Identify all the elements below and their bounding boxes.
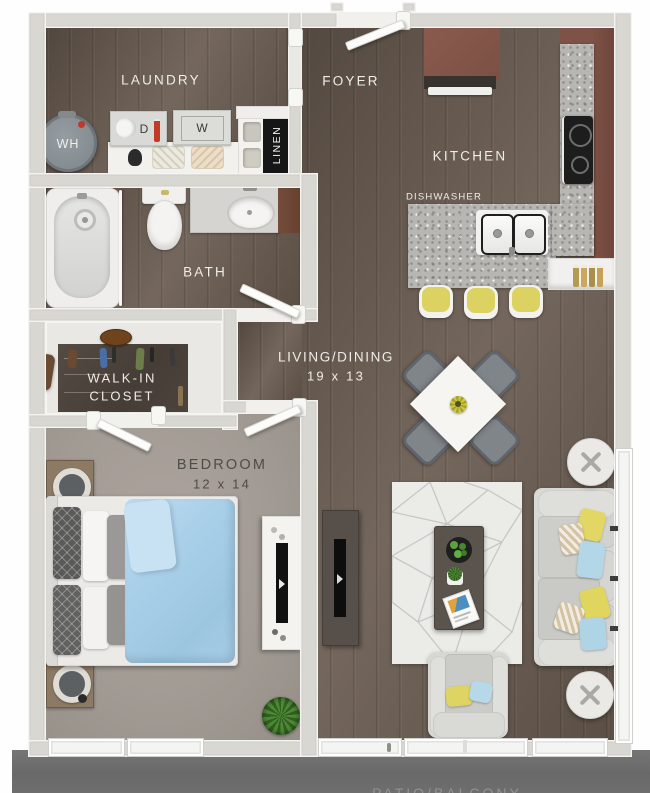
- bowl-greens: [450, 541, 458, 549]
- burner-small: [571, 156, 589, 174]
- bedroom-window: [127, 738, 204, 757]
- dryer-unit: D: [110, 111, 167, 146]
- water-heater-pipe: [58, 111, 76, 118]
- decor-plant-small: [447, 571, 463, 585]
- bowl-greens: [461, 550, 467, 556]
- tub-drain: [74, 209, 96, 231]
- kettle: [128, 149, 142, 166]
- wine-bottle: [573, 265, 579, 287]
- kitchen-upper-cabinet: [424, 28, 500, 80]
- bath-cabinet: [278, 182, 302, 233]
- bedroom-dresser: [262, 516, 302, 650]
- decor-plant-leaves: [448, 567, 462, 581]
- kitchen-counter-connector: [552, 204, 594, 256]
- wall-bath-right: [300, 173, 318, 322]
- magazine-cover-art: [447, 595, 469, 614]
- window-frame-tick: [610, 576, 618, 581]
- bed: [46, 496, 238, 666]
- hanging-garment: [169, 348, 175, 366]
- right-wall-window: [615, 448, 633, 744]
- shower-curtain: [119, 190, 122, 306]
- bedroom-plant: [262, 697, 300, 735]
- side-table: [566, 671, 614, 719]
- armchair-back: [433, 712, 505, 738]
- laundry-door-post: [288, 28, 303, 47]
- dresser-knob: [271, 527, 277, 533]
- laundry-counter: [108, 142, 246, 173]
- dryer-label: D: [140, 122, 149, 136]
- burner-large: [569, 124, 592, 147]
- wall-left: [28, 12, 46, 757]
- decor-bowl: [446, 537, 472, 563]
- laundry-sink-basin: [243, 148, 261, 168]
- water-heater-label: WH: [57, 137, 80, 151]
- vanity-drain: [247, 210, 252, 215]
- patio-door: [318, 738, 402, 757]
- laundry-basket: [152, 146, 185, 169]
- hanging-garment: [99, 348, 107, 368]
- stool-seat: [512, 287, 540, 312]
- tub-drain-dot: [82, 217, 88, 223]
- bath-vanity: [190, 184, 280, 233]
- wine-shelf: [548, 258, 616, 290]
- living-tv: [334, 539, 346, 617]
- hanging-garment: [150, 347, 154, 362]
- bed-pillow-dark: [53, 507, 81, 579]
- kitchen-label: KITCHEN: [433, 149, 508, 164]
- closet-label-line1: WALK-IN: [87, 371, 156, 386]
- bed-pillow-white: [83, 511, 109, 581]
- living-dining-dims-label: 19 x 13: [307, 369, 365, 384]
- sofa-pillow-blue: [576, 541, 606, 580]
- toilet-bowl: [147, 200, 182, 250]
- entry-frame-tab: [330, 2, 344, 12]
- detergent-bottle: [154, 119, 160, 142]
- dryer-drum: [116, 118, 136, 138]
- bed-pillow-white: [83, 587, 109, 649]
- bedroom-dims-label: 12 x 14: [193, 477, 251, 492]
- water-heater: WH: [39, 114, 97, 172]
- hanging-garment: [135, 348, 144, 370]
- foyer-label: FOYER: [322, 74, 380, 89]
- coffee-table: [434, 526, 484, 630]
- washer-unit: W: [173, 110, 231, 145]
- armchair-pillow-blue: [468, 680, 493, 704]
- bedroom-window: [48, 738, 125, 757]
- tv-play-icon: [279, 579, 285, 589]
- dresser-knob: [272, 629, 278, 635]
- linen-shelf-top: [236, 106, 293, 119]
- stool-seat: [422, 287, 450, 312]
- sink-basin-right: [513, 214, 546, 255]
- toilet-button: [161, 190, 169, 195]
- sink-faucet: [509, 247, 515, 255]
- dining-centerpiece-plant: [450, 396, 467, 413]
- dresser-knob: [280, 635, 286, 641]
- tv-play-icon: [337, 574, 343, 584]
- wine-bottle: [589, 265, 595, 287]
- bedroom-label: BEDROOM: [177, 457, 267, 473]
- side-table: [567, 438, 615, 486]
- duvet: [125, 499, 235, 663]
- patio-door-handle: [387, 743, 391, 752]
- hanging-garment: [112, 347, 116, 363]
- laundry-basket: [191, 146, 224, 169]
- closet-bag: [100, 329, 132, 346]
- dresser-knob: [279, 534, 285, 540]
- laundry-door-post: [288, 88, 303, 107]
- dishwasher-label: DISHWASHER: [406, 192, 482, 203]
- closet-label-line2: CLOSET: [89, 389, 154, 404]
- hanging-garment: [178, 386, 183, 406]
- laundry-label: LAUNDRY: [121, 73, 201, 88]
- patio-label: PATIO/BALCONY: [372, 785, 522, 793]
- living-dining-label: LIVING/DINING: [278, 350, 394, 365]
- vanity-sink: [227, 196, 275, 230]
- stove: [562, 116, 593, 184]
- bed-pillow-dark: [53, 585, 81, 655]
- sink-drain-right: [525, 229, 534, 238]
- linen-closet: LINEN: [263, 116, 290, 173]
- water-heater-valve: [78, 121, 85, 128]
- wall-top-right-segment: [406, 12, 632, 28]
- living-window: [532, 738, 608, 757]
- wall-bedroom-living: [300, 400, 318, 757]
- bar-stool: [509, 285, 543, 318]
- washer-label: W: [196, 121, 207, 135]
- bath-label: BATH: [183, 265, 227, 280]
- sofa-pillow-blue: [579, 617, 608, 651]
- wine-bottle: [597, 265, 603, 287]
- stool-seat: [467, 288, 495, 313]
- tub-faucet: [77, 193, 87, 199]
- bathtub: [46, 188, 120, 308]
- hanging-garment: [67, 350, 77, 369]
- magazine: [442, 589, 479, 629]
- laundry-door-opening: [289, 44, 301, 88]
- linen-label: LINEN: [271, 126, 283, 164]
- laundry-sink-basin: [243, 122, 261, 142]
- floorplan-canvas: PATIO/BALCONY: [0, 0, 650, 793]
- closet-door-post: [151, 406, 166, 425]
- window-frame-tick: [610, 626, 618, 631]
- bowl-greens: [459, 543, 466, 550]
- living-window: [404, 738, 528, 757]
- bedroom-tv: [276, 543, 288, 623]
- kitchen-right-cabinet-strip: [592, 28, 614, 258]
- wine-bottle: [581, 265, 587, 287]
- kitchen-cabinet-tray: [428, 87, 492, 95]
- sofa: [534, 488, 618, 666]
- bar-stool: [464, 286, 498, 319]
- sink-unit: [476, 210, 548, 255]
- window-mullion: [463, 740, 467, 753]
- bar-stool: [419, 285, 453, 318]
- sink-drain-left: [493, 229, 502, 238]
- duvet-fold: [123, 498, 177, 573]
- centerpiece-core: [455, 401, 461, 407]
- window-frame-tick: [610, 526, 618, 531]
- armchair: [428, 652, 508, 738]
- nightstand-cup: [78, 694, 87, 703]
- wall-laundry-bath: [28, 173, 318, 188]
- living-media-console: [322, 510, 359, 646]
